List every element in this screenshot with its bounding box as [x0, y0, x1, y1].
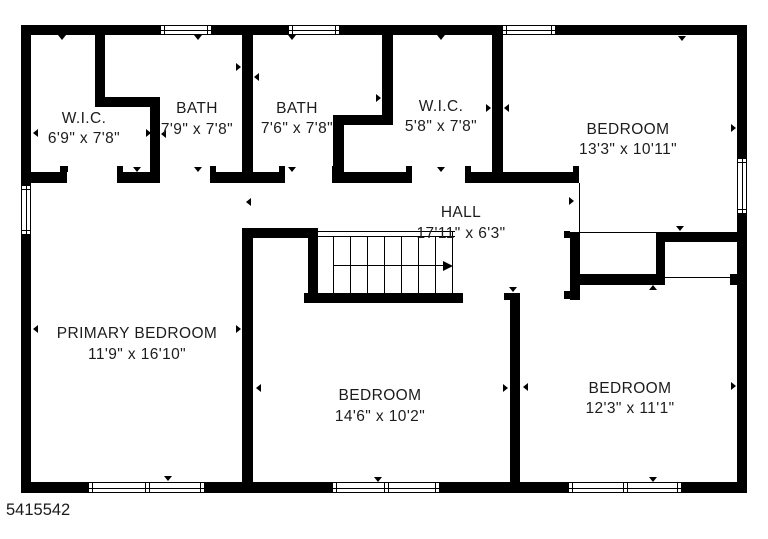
wall [95, 25, 105, 107]
dimension-tick [288, 35, 296, 40]
wall [117, 166, 123, 172]
window-pane-line [623, 483, 624, 492]
wall [332, 172, 412, 183]
wall [492, 25, 503, 183]
room-label-bedroom-bottom-middle: BEDROOM [339, 387, 422, 405]
window-pane-line [145, 483, 146, 492]
dimension-tick [649, 285, 657, 290]
wall [60, 166, 68, 172]
window [88, 482, 205, 493]
stairs-direction-arrow-icon [443, 261, 453, 271]
wall [406, 166, 412, 172]
window-pane-line [742, 159, 743, 213]
window-pane-line [26, 186, 27, 234]
room-dims-bath-2: 7'6" x 7'8" [261, 120, 333, 138]
wall [333, 115, 344, 173]
dimension-tick [509, 287, 517, 292]
window-pane-line [384, 483, 385, 492]
wall [332, 166, 338, 172]
window-pane-line [551, 26, 552, 34]
wall [465, 166, 471, 172]
window [332, 482, 440, 493]
window-pane-line [572, 483, 573, 492]
window-pane-line [289, 30, 339, 31]
dimension-tick [194, 167, 202, 172]
room-label-wic-1: W.I.C. [62, 110, 107, 128]
wall [242, 228, 318, 238]
window [737, 158, 747, 214]
window [568, 482, 682, 493]
dimension-tick [376, 94, 381, 102]
thin-wall-line [580, 232, 656, 233]
wall [730, 274, 738, 285]
window [288, 25, 340, 35]
dimension-tick [288, 167, 296, 172]
window-pane-line [92, 483, 93, 492]
window-pane-line [292, 26, 293, 34]
window-pane-line [200, 483, 201, 492]
window [160, 25, 212, 35]
wall [465, 172, 579, 183]
wall [150, 97, 160, 178]
window-pane-line [738, 162, 746, 163]
room-dims-bedroom-top-right: 13'3" x 10'11" [579, 141, 677, 159]
thin-wall-line [665, 277, 730, 278]
room-dims-bedroom-bottom-middle: 14'6" x 10'2" [335, 408, 425, 426]
wall [117, 172, 160, 183]
window-pane-line [336, 483, 337, 492]
wall [242, 25, 253, 183]
wall [210, 166, 216, 172]
wall [242, 228, 253, 482]
floorplan-id: 5415542 [6, 501, 70, 520]
window-pane-line [149, 483, 150, 492]
dimension-tick [503, 384, 508, 392]
room-dims-primary-bedroom: 11'9" x 16'10" [88, 346, 186, 364]
stairs-direction-line [333, 265, 443, 266]
dimension-tick [236, 63, 241, 71]
room-dims-bath-1: 7'9" x 7'8" [161, 121, 233, 139]
wall [308, 238, 318, 298]
dimension-tick [33, 129, 38, 137]
dimension-tick [486, 104, 491, 112]
wall [510, 293, 520, 482]
wall [656, 232, 737, 242]
window [21, 185, 31, 235]
dimension-tick [376, 294, 384, 299]
room-label-bath-1: BATH [176, 100, 218, 118]
window-pane-line [164, 26, 165, 34]
dimension-tick [437, 35, 445, 40]
dimension-tick [649, 477, 657, 482]
window-pane-line [335, 26, 336, 34]
wall [210, 172, 285, 183]
room-label-bedroom-bottom-right: BEDROOM [589, 380, 672, 398]
room-dims-wic-1: 6'9" x 7'8" [48, 130, 120, 148]
room-dims-hall: 17'11" x 6'3" [416, 225, 505, 243]
dimension-tick [678, 36, 686, 41]
room-label-hall: HALL [441, 204, 481, 222]
window-pane-line [738, 209, 746, 210]
wall [575, 274, 662, 285]
window-pane-line [569, 488, 681, 489]
dimension-tick [731, 124, 736, 132]
thin-wall-line [579, 183, 580, 232]
window-pane-line [677, 483, 678, 492]
window-pane-line [22, 230, 30, 231]
window-pane-line [207, 26, 208, 34]
window-pane-line [89, 488, 204, 489]
dimension-tick [58, 35, 66, 40]
dimension-tick [236, 325, 241, 333]
dimension-tick [164, 476, 172, 481]
dimension-tick [33, 325, 38, 333]
dimension-tick [676, 226, 684, 231]
wall [279, 166, 285, 172]
window-pane-line [333, 488, 439, 489]
window-pane-line [435, 483, 436, 492]
wall [21, 172, 67, 183]
window-pane-line [506, 26, 507, 34]
window-pane-line [161, 30, 211, 31]
wall [570, 232, 580, 300]
dimension-tick [374, 477, 382, 482]
wall [573, 166, 579, 172]
room-dims-bedroom-bottom-right: 12'3" x 11'1" [585, 400, 674, 418]
window [502, 25, 556, 35]
dimension-tick [254, 73, 259, 81]
dimension-tick [731, 382, 736, 390]
dimension-tick [437, 167, 445, 172]
room-label-wic-2: W.I.C. [419, 98, 464, 116]
dimension-tick [146, 129, 151, 137]
wall [737, 25, 747, 493]
wall [21, 25, 31, 493]
room-label-bath-2: BATH [276, 100, 318, 118]
wall [564, 291, 570, 299]
floorplan-canvas: 5415542 W.I.C.6'9" x 7'8"BATH7'9" x 7'8"… [0, 0, 768, 539]
window-pane-line [627, 483, 628, 492]
dimension-tick [569, 197, 574, 205]
wall [564, 231, 570, 238]
room-label-bedroom-top-right: BEDROOM [587, 121, 670, 139]
window-pane-line [503, 30, 555, 31]
dimension-tick [504, 104, 509, 112]
window-pane-line [388, 483, 389, 492]
dimension-tick [194, 35, 202, 40]
dimension-tick [133, 167, 141, 172]
dimension-tick [523, 383, 528, 391]
window-pane-line [22, 189, 30, 190]
room-dims-wic-2: 5'8" x 7'8" [405, 118, 477, 136]
room-label-primary-bedroom: PRIMARY BEDROOM [57, 325, 217, 343]
dimension-tick [256, 384, 261, 392]
wall [504, 293, 510, 300]
dimension-tick [246, 198, 251, 206]
wall [382, 25, 393, 125]
